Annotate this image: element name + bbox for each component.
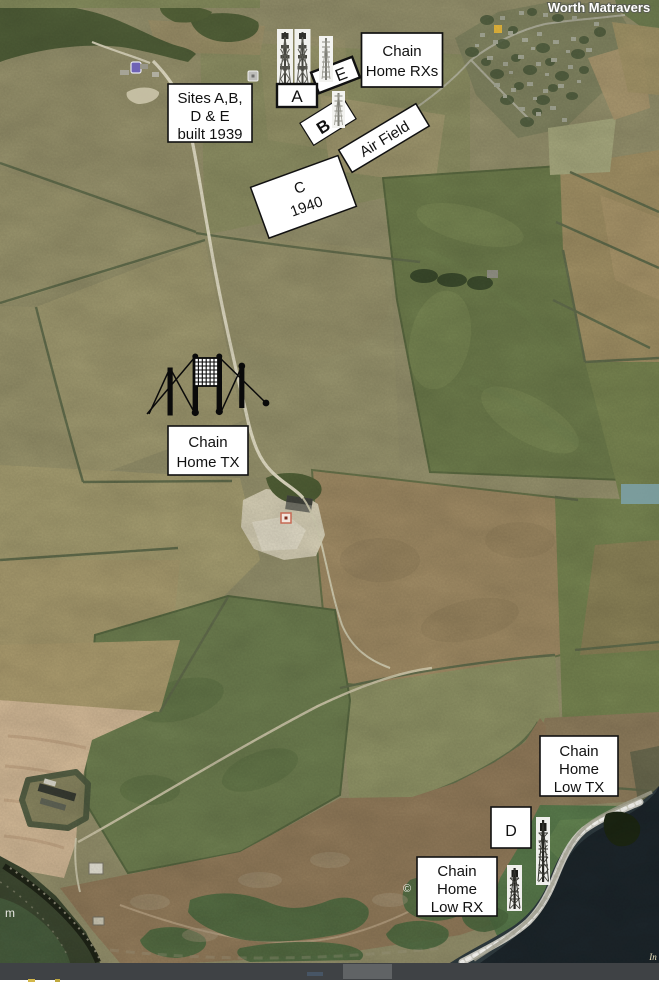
svg-text:Chain: Chain — [559, 743, 598, 760]
svg-text:A: A — [291, 87, 303, 106]
svg-text:Home RXs: Home RXs — [366, 63, 439, 80]
svg-text:D & E: D & E — [190, 108, 229, 125]
svg-text:D: D — [505, 823, 517, 840]
svg-text:©: © — [403, 883, 411, 895]
svg-text:Low TX: Low TX — [554, 779, 605, 796]
svg-text:Low RX: Low RX — [431, 899, 484, 916]
svg-text:In: In — [648, 952, 657, 962]
svg-text:Chain: Chain — [437, 863, 476, 880]
svg-text:m: m — [5, 906, 15, 920]
svg-text:Sites A,B,: Sites A,B, — [177, 90, 242, 107]
svg-text:Chain: Chain — [188, 434, 227, 451]
svg-text:Home: Home — [559, 761, 599, 778]
svg-text:Chain: Chain — [382, 43, 421, 60]
svg-text:built 1939: built 1939 — [177, 126, 242, 143]
svg-text:Home: Home — [437, 881, 477, 898]
svg-text:Home TX: Home TX — [176, 454, 239, 471]
svg-text:Worth Matravers: Worth Matravers — [548, 0, 650, 15]
